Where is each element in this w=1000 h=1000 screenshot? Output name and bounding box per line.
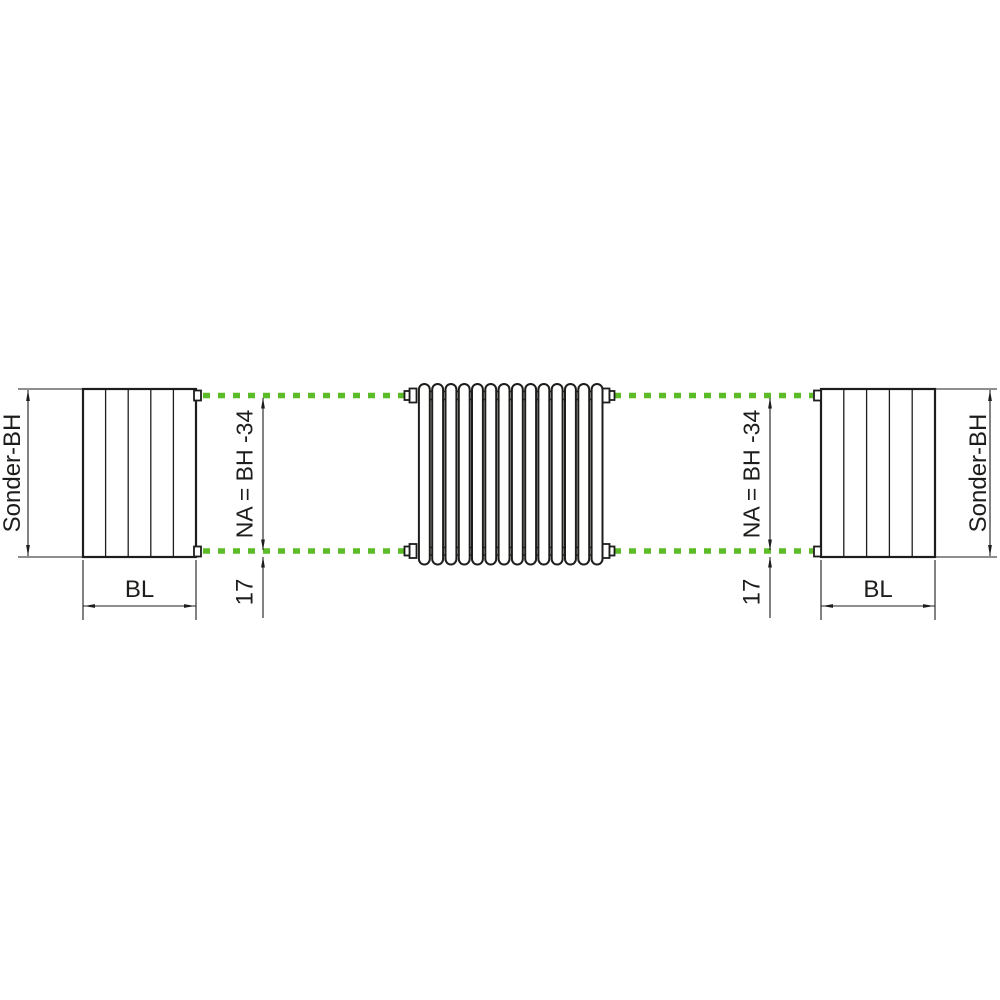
dimension-17-left: 17 xyxy=(232,557,265,619)
arrow-up-icon xyxy=(261,557,265,568)
arrow-down-icon xyxy=(26,545,30,556)
arrow-up-icon xyxy=(26,390,30,401)
label-sonder-bh-left: Sonder-BH xyxy=(0,414,26,533)
left-panel-body xyxy=(83,389,196,557)
radiator-tubes xyxy=(419,384,603,565)
arrow-left-icon xyxy=(822,604,833,608)
bottom-right-connection-cap xyxy=(610,547,615,556)
bottom-left-connection-cap xyxy=(405,547,410,556)
left-panel-top-connection-stub xyxy=(194,391,201,401)
dimension-sonder-bh-right: Sonder-BH xyxy=(935,389,997,557)
left-side-view xyxy=(83,389,201,557)
right-side-view xyxy=(814,389,935,557)
radiator-dimension-diagram: Sonder-BH BL NA = BH -34 17 NA = BH -34 … xyxy=(0,0,1000,1000)
top-right-connection-cap xyxy=(610,391,615,400)
dimension-na-left: NA = BH -34 xyxy=(232,398,265,551)
label-bl-left: BL xyxy=(125,576,154,603)
label-17-left: 17 xyxy=(232,579,259,606)
right-panel-bottom-connection-stub xyxy=(814,547,821,557)
dimension-bl-left: BL xyxy=(83,560,196,620)
radiator-tube xyxy=(552,384,563,565)
arrow-up-icon xyxy=(768,398,772,409)
radiator-tube xyxy=(459,384,470,565)
radiator-tube xyxy=(419,384,430,565)
top-right-connection-stub xyxy=(603,389,610,403)
bottom-right-connection-stub xyxy=(603,544,610,558)
top-left-connection-cap xyxy=(405,391,410,400)
radiator-tube xyxy=(446,384,457,565)
arrow-up-icon xyxy=(768,557,772,568)
radiator-tube xyxy=(432,384,443,565)
radiator-tube xyxy=(592,384,603,565)
label-na-right: NA = BH -34 xyxy=(739,410,765,539)
label-17-right: 17 xyxy=(739,579,766,606)
label-sonder-bh-right: Sonder-BH xyxy=(965,414,992,533)
arrow-left-icon xyxy=(84,604,95,608)
radiator-tube xyxy=(485,384,496,565)
arrow-up-icon xyxy=(261,398,265,409)
right-panel-top-connection-stub xyxy=(814,391,821,401)
radiator-tube xyxy=(538,384,549,565)
bottom-left-connection-stub xyxy=(410,544,417,558)
label-bl-right: BL xyxy=(863,576,892,603)
technical-drawing-canvas: Sonder-BH BL NA = BH -34 17 NA = BH -34 … xyxy=(0,0,1000,1000)
radiator-tube xyxy=(525,384,536,565)
arrow-up-icon xyxy=(988,390,992,401)
top-left-connection-stub xyxy=(410,389,417,403)
dimension-17-right: 17 xyxy=(739,557,772,619)
radiator-tube xyxy=(512,384,523,565)
radiator-tube xyxy=(578,384,589,565)
label-na-left: NA = BH -34 xyxy=(232,410,258,539)
dimension-bl-right: BL xyxy=(821,560,935,620)
left-panel-bottom-connection-stub xyxy=(194,547,201,557)
arrow-down-icon xyxy=(988,545,992,556)
right-panel-body xyxy=(821,389,935,557)
radiator-tube xyxy=(499,384,510,565)
radiator-tube xyxy=(472,384,483,565)
dimension-sonder-bh-left: Sonder-BH xyxy=(0,389,83,557)
arrow-right-icon xyxy=(184,604,195,608)
radiator-front-view xyxy=(405,384,615,565)
dimension-na-right: NA = BH -34 xyxy=(739,398,772,551)
arrow-right-icon xyxy=(923,604,934,608)
radiator-tube xyxy=(565,384,576,565)
